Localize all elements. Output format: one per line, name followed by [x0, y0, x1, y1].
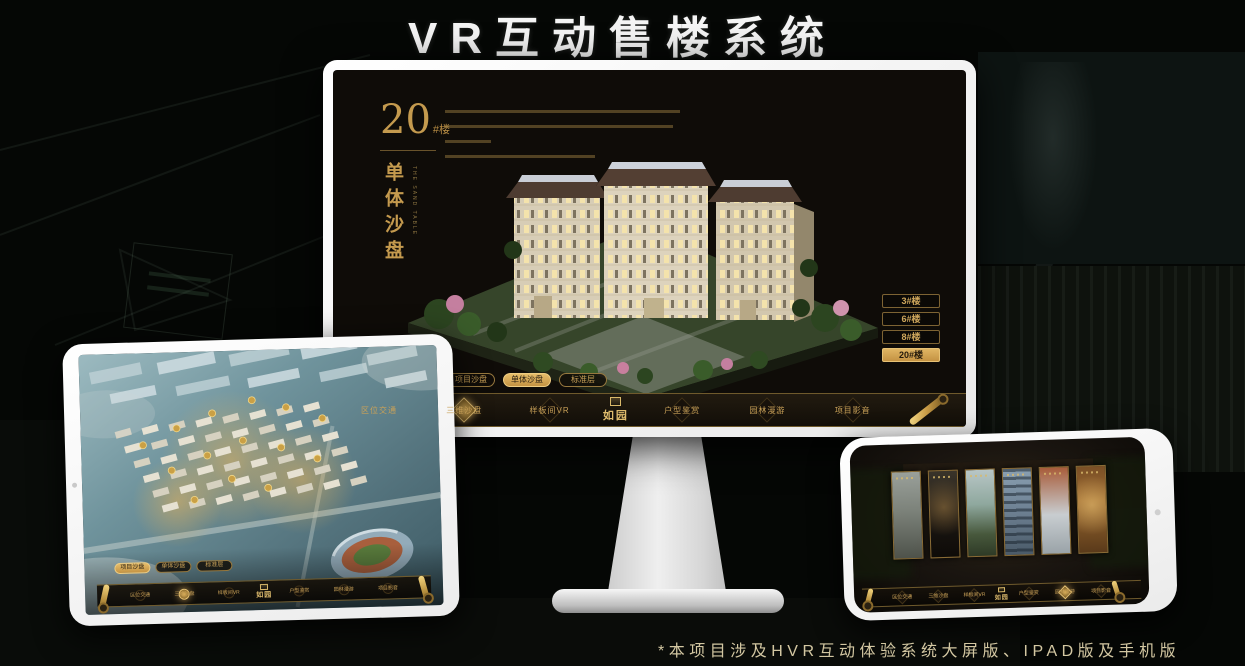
gallery-panels [890, 465, 1108, 560]
tablet-screen: 项目沙盘 单体沙盘 标准层 区位交通 三维沙盘 样板间VR 如园 户型鉴赏 园林… [78, 345, 443, 615]
gallery-panel-interior-dark[interactable] [927, 470, 960, 559]
brand-logo: 如园 [994, 587, 1008, 601]
building-render [393, 118, 893, 413]
tablet-tab-project-sandtable[interactable]: 项目沙盘 [114, 562, 150, 574]
nav-item-floorplans[interactable]: 户型鉴赏 [650, 405, 714, 416]
footnote: *本项目涉及HVR互动体验系统大屏版、IPAD版及手机版 [658, 637, 1180, 661]
monitor-stand-base [552, 589, 784, 613]
nav-item-showroom-vr[interactable]: 样板间VR [212, 588, 246, 596]
nav-item-3d-sandtable[interactable]: 三维沙盘 [922, 592, 954, 600]
scroll-ornament-icon[interactable] [908, 394, 945, 425]
phone-nav-bar: 区位交通 三维沙盘 样板间VR 如园 户型鉴赏 园林漫游 项目影音 [862, 580, 1141, 608]
nav-item-3d-sandtable[interactable]: 三维沙盘 [167, 590, 201, 598]
floor-button-20[interactable]: 20#楼 [882, 348, 940, 362]
gallery-panel-autumn[interactable] [1038, 466, 1071, 555]
background-plaque [123, 242, 233, 340]
phone-screen: 区位交通 三维沙盘 样板间VR 如园 户型鉴赏 园林漫游 项目影音 [849, 437, 1149, 613]
nav-item-location[interactable]: 区位交通 [886, 593, 918, 601]
floor-button-6[interactable]: 6#楼 [882, 312, 940, 326]
mode-tab-group: 项目沙盘 单体沙盘 标准层 [447, 373, 607, 387]
brand-logo: 如园 [603, 397, 629, 423]
tab-standard-floor[interactable]: 标准层 [559, 373, 607, 387]
tablet-tab-standard-floor[interactable]: 标准层 [196, 560, 232, 572]
tab-single-sandtable[interactable]: 单体沙盘 [503, 373, 551, 387]
gallery-panel-interior-warm[interactable] [1075, 465, 1108, 554]
floor-button-group: 3#楼 6#楼 8#楼 20#楼 [882, 294, 942, 366]
nav-item-floorplans[interactable]: 户型鉴赏 [282, 586, 316, 594]
nav-item-floorplans[interactable]: 户型鉴赏 [1013, 589, 1045, 597]
brand-logo: 如园 [256, 583, 272, 599]
nav-item-project-video[interactable]: 项目影音 [821, 405, 885, 416]
phone-camera-icon [1155, 509, 1161, 515]
gallery-panel-courtyard[interactable] [890, 471, 923, 560]
tablet-tab-single-sandtable[interactable]: 单体沙盘 [155, 561, 191, 573]
nav-item-project-video[interactable]: 项目影音 [371, 584, 405, 592]
nav-item-location[interactable]: 区位交通 [347, 405, 411, 416]
page-title: VR互动售楼系统 [0, 2, 1245, 66]
nav-item-garden-tour[interactable]: 园林漫游 [327, 585, 361, 593]
tablet-camera-icon [72, 483, 77, 488]
aerial-masterplan-render [78, 345, 443, 615]
background-photo-river [978, 52, 1245, 264]
floor-button-3[interactable]: 3#楼 [882, 294, 940, 308]
nav-item-garden-tour[interactable]: 园林漫游 [1049, 588, 1081, 596]
nav-item-3d-sandtable[interactable]: 三维沙盘 [432, 405, 496, 416]
gallery-panel-landscape[interactable] [964, 468, 997, 557]
nav-item-showroom-vr[interactable]: 样板间VR [518, 405, 582, 416]
seal-icon [610, 397, 621, 406]
phone: 区位交通 三维沙盘 样板间VR 如园 户型鉴赏 园林漫游 项目影音 [839, 428, 1178, 621]
nav-item-showroom-vr[interactable]: 样板间VR [958, 591, 990, 599]
floor-button-8[interactable]: 8#楼 [882, 330, 940, 344]
tab-project-sandtable[interactable]: 项目沙盘 [447, 373, 495, 387]
nav-item-location[interactable]: 区位交通 [123, 591, 157, 599]
nav-item-garden-tour[interactable]: 园林漫游 [735, 405, 799, 416]
gallery-panel-facade[interactable] [1001, 467, 1034, 556]
stage: VR互动售楼系统 20#楼 单体沙盘 THE SAND TABLE [0, 0, 1245, 666]
tablet: 项目沙盘 单体沙盘 标准层 区位交通 三维沙盘 样板间VR 如园 户型鉴赏 园林… [62, 334, 460, 627]
